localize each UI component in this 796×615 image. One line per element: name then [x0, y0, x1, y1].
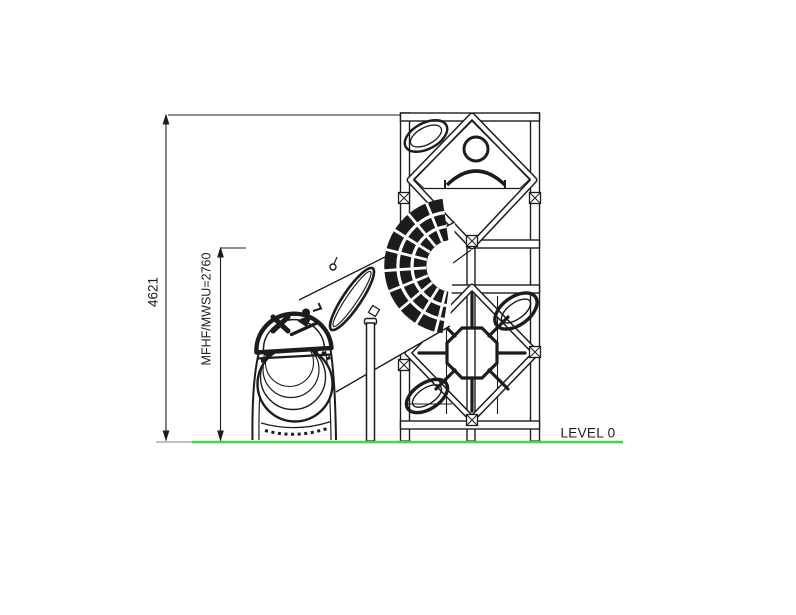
band-clamp-knob	[330, 264, 336, 270]
web-spoke-se	[489, 370, 508, 389]
clamp-connector	[530, 193, 541, 204]
drawing-canvas: 4621 MFHF/MWSU=2760 LEVEL 0	[0, 0, 796, 615]
clamp-connector	[399, 360, 410, 371]
exit-ground-bolts	[265, 429, 327, 435]
exit-casing-left-outer	[252, 352, 259, 440]
clamp-connector	[530, 347, 541, 358]
arrow-down-icon	[163, 431, 170, 442]
clamp-connector	[467, 415, 478, 426]
elevation-drawing: 4621 MFHF/MWSU=2760 LEVEL 0	[0, 0, 796, 615]
dimension-label-4621: 4621	[146, 277, 161, 307]
figure-shoulder-arc	[447, 171, 505, 185]
dimension-fall-height: MFHF/MWSU=2760	[200, 247, 247, 442]
figure-head-ring	[464, 137, 488, 161]
level-0-label: LEVEL 0	[561, 426, 616, 441]
oval-window-inner	[498, 295, 535, 328]
post-body	[367, 323, 375, 441]
dimension-label-mfhf: MFHF/MWSU=2760	[200, 253, 214, 366]
sign-person-head	[302, 309, 310, 317]
band-clamp-pin	[334, 257, 337, 264]
clamp-connector	[399, 193, 410, 204]
arrow-down-icon	[217, 431, 224, 442]
clamp-connector	[467, 236, 478, 247]
tower-right-post	[531, 113, 540, 441]
